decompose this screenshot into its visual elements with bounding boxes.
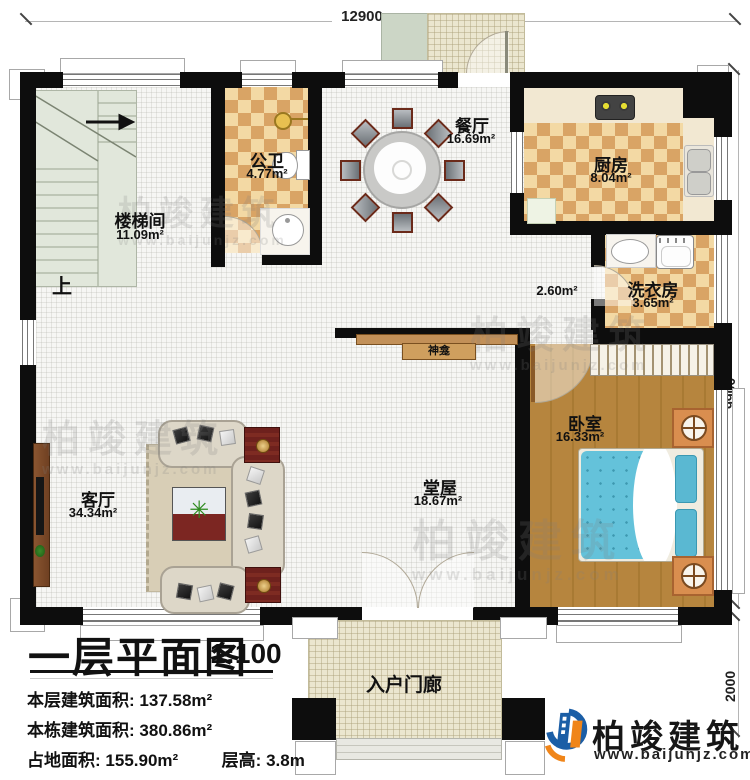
title-underline (30, 670, 273, 673)
porch-column (502, 698, 545, 740)
wall-bathroom-right (308, 87, 322, 253)
room-area-corridor: 2.60m² (536, 283, 577, 298)
laundry-sink (611, 239, 649, 264)
stove-burner (601, 101, 611, 111)
stat-label: 占地面积: (27, 751, 101, 770)
brand-logo-icon (540, 704, 588, 766)
room-area-living: 34.34m² (69, 505, 117, 520)
window-laundry-right (716, 235, 728, 323)
window-dining-top (345, 74, 438, 86)
wall-laundry-left (591, 235, 605, 267)
kitchen-sink-basin (687, 172, 711, 195)
wall-bedroom-top (593, 328, 732, 344)
pillow (219, 429, 236, 446)
brand-url: www.baijunjz.com (594, 746, 750, 763)
window-stairwell-top (63, 74, 180, 86)
terrace-door-leaf (505, 31, 508, 73)
porch-steps (336, 738, 502, 760)
dimension-tick (20, 13, 33, 26)
kitchen-door-opening (511, 132, 523, 193)
lamp (681, 563, 707, 589)
title-underline-thin (30, 678, 273, 679)
shower-head (274, 112, 292, 130)
faucet (285, 218, 290, 223)
cabinet-plant (35, 545, 45, 557)
porch-frame (500, 617, 547, 639)
dimension-porch: 2000 (722, 642, 738, 702)
room-area-dining: 16.69m² (447, 131, 495, 146)
wall-corner-column (683, 88, 714, 118)
porch-column (292, 698, 336, 740)
room-area-laundry: 3.65m² (632, 295, 673, 310)
window-bathroom-top (242, 74, 292, 86)
bed-sheet-fold (633, 448, 677, 562)
pillow (197, 425, 215, 443)
room-area-kitchen: 8.04m² (590, 170, 631, 185)
bed-pillow (675, 455, 697, 503)
dining-chair (392, 212, 413, 233)
window-sill (240, 60, 296, 74)
side-table (244, 427, 280, 463)
wall-kitchen-left (510, 87, 524, 132)
drawing-scale: 1:100 (210, 638, 282, 670)
washer-drum (661, 246, 691, 267)
lamp (681, 415, 707, 441)
floor-plan-canvas: 12900 9900 2000 (0, 0, 750, 780)
medallion (257, 579, 271, 593)
washer-controls (659, 238, 691, 243)
tv (36, 477, 44, 535)
dining-table-center (392, 160, 412, 180)
stat-floor-area: 本层建筑面积: 137.58m² (27, 686, 212, 711)
nightstand (672, 408, 714, 448)
table-plant: ✳ (186, 498, 212, 524)
room-area-bedroom: 16.33m² (556, 429, 604, 444)
window-sill (556, 625, 682, 643)
dimension-tick (729, 13, 742, 26)
stat-label: 本层建筑面积: (27, 691, 135, 710)
room-area-bathroom: 4.77m² (246, 166, 287, 181)
stat-value: 155.90m² (105, 751, 178, 770)
bedroom-door-leaf (531, 346, 535, 402)
stat-value: 137.58m² (139, 691, 212, 710)
stove-burner (619, 101, 629, 111)
wardrobe (590, 344, 714, 376)
wall-segment (180, 72, 242, 88)
toilet-tank (296, 150, 310, 180)
wall-bottom (20, 607, 83, 625)
window-bedroom-bay (716, 390, 728, 590)
wall-bathroom-left (211, 87, 225, 267)
porch-frame (292, 617, 338, 639)
nightstand (672, 556, 714, 596)
stat-label: 本栋建筑面积: (27, 721, 135, 740)
staircase-treads (34, 91, 136, 286)
stat-value: 3.8m (266, 751, 305, 770)
side-table (245, 567, 281, 603)
stat-building-area: 本栋建筑面积: 380.86m² (27, 716, 212, 741)
window-kitchen-right (716, 137, 728, 200)
pillow (247, 513, 264, 530)
wall-segment (438, 72, 458, 88)
wall-left (20, 72, 36, 320)
wall-bedroom-left (515, 328, 530, 607)
shower-arm (290, 118, 308, 120)
washing-machine (656, 235, 694, 269)
stairs-up-label: 上 (52, 270, 72, 299)
window-living-left (22, 320, 34, 365)
dining-chair (340, 160, 361, 181)
window-sill (732, 388, 745, 594)
porch-frame (505, 741, 545, 775)
window-sill (342, 60, 443, 74)
stat-footprint-height: 占地面积: 155.90m² 层高: 3.8m (27, 746, 305, 771)
wall-segment (292, 72, 345, 88)
terrace-door-opening (458, 73, 510, 87)
pillow (245, 490, 263, 508)
room-area-hall: 18.67m² (414, 493, 462, 508)
dining-chair (392, 108, 413, 129)
stat-label: 层高: (222, 751, 262, 770)
pillow (197, 585, 215, 603)
pillow (176, 583, 193, 600)
wall-segment (510, 72, 714, 88)
bed (578, 448, 704, 562)
dining-chair (444, 160, 465, 181)
staircase (33, 90, 137, 287)
brand-logo: 柏竣建筑 www.baijunjz.com (540, 702, 745, 772)
kitchen-appliance (527, 198, 556, 224)
wall-bottom (678, 607, 732, 625)
medallion (256, 439, 270, 453)
window-bedroom-bottom (558, 609, 678, 622)
room-area-stairwell: 11.09m² (116, 227, 164, 242)
window-sill (60, 58, 185, 74)
wall-right (714, 72, 732, 137)
room-label-porch: 入户门廊 (366, 670, 442, 697)
bed-pillow (675, 509, 697, 557)
kitchen-sink-basin (687, 149, 711, 172)
shrine: 神龛 (402, 343, 476, 360)
stat-value: 380.86m² (139, 721, 212, 740)
